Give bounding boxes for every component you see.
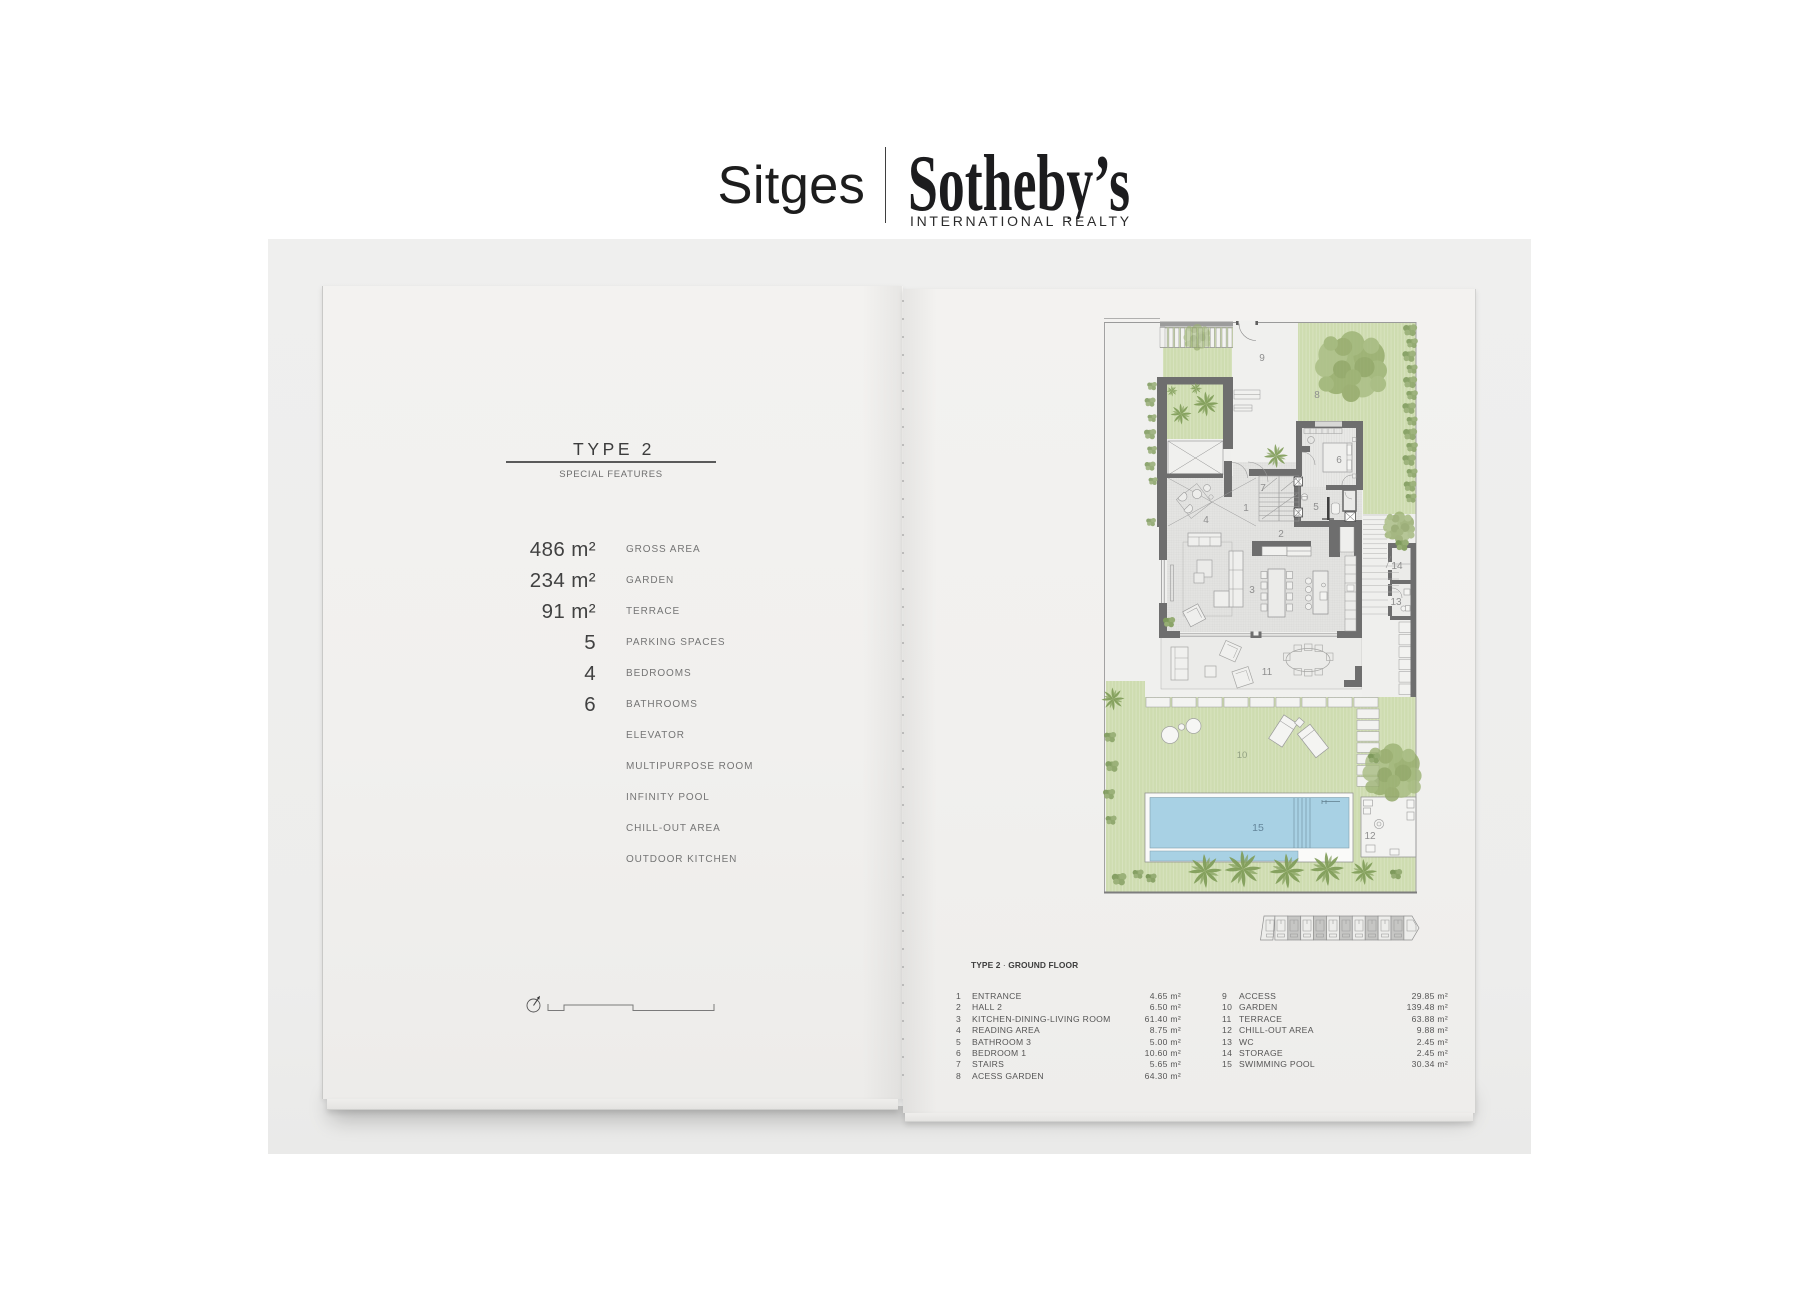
svg-text:10: 10: [1237, 750, 1248, 761]
svg-text:9: 9: [1259, 353, 1265, 364]
svg-text:1: 1: [1243, 503, 1249, 514]
svg-text:13: 13: [1390, 597, 1402, 608]
svg-text:11: 11: [1262, 667, 1273, 678]
svg-text:4: 4: [1203, 515, 1209, 526]
svg-text:12: 12: [1364, 831, 1376, 842]
svg-text:7: 7: [1260, 483, 1266, 494]
svg-text:6: 6: [1336, 455, 1342, 466]
svg-text:15: 15: [1252, 822, 1264, 834]
svg-text:14: 14: [1391, 561, 1403, 572]
svg-text:8: 8: [1314, 390, 1320, 401]
svg-text:3: 3: [1249, 585, 1255, 596]
svg-text:5: 5: [1313, 502, 1319, 513]
svg-text:2: 2: [1278, 529, 1284, 540]
